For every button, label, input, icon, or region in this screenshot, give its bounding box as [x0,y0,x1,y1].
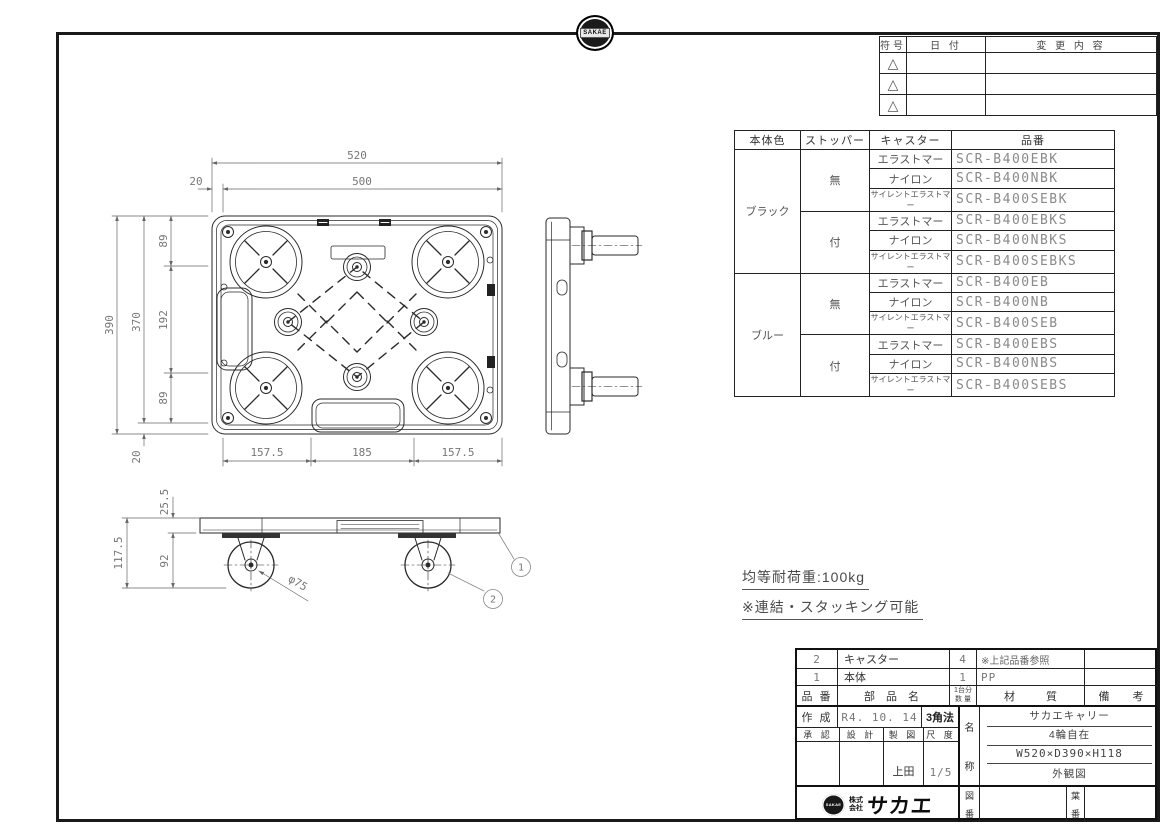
company-prefix-bottom: 会社 [849,805,863,813]
part-no-cell: 2 [797,650,838,669]
sakae-logo-badge-icon: SAKAE [576,15,614,51]
side-view [546,218,642,434]
dim-185: 185 [352,446,372,459]
dim-500: 500 [352,175,372,188]
part-note-cell [1085,669,1157,686]
connector-hubs [275,254,438,391]
col-header-no: 品 番 [797,686,838,707]
name-label-bottom: 称 [965,758,975,773]
design-label: 設 計 [840,728,884,742]
rib-pattern [288,267,424,377]
balloon-callouts: 1 2 [448,534,531,609]
drafter-name: 上田 [884,742,924,785]
dim-wheel-dia: φ75 [286,572,310,593]
side-caster-top [570,227,642,264]
dim-89-bottom: 89 [157,391,170,404]
approve-label: 承 認 [797,728,840,742]
name-label: 名 称 [960,707,980,785]
qty-header-top: 1台分 [954,687,972,695]
front-caster-right [401,538,455,591]
approve-value [797,742,840,785]
col-header-material: 材 質 [977,686,1085,707]
drawing-sheet: SAKAE 符号 日 付 変 更 内 容 △ △ △ 本体色 ストッパー キャス… [0,0,1174,831]
part-no-cell: 1 [797,669,838,686]
dim-157-right: 157.5 [441,446,474,459]
part-name-cell: キャスター [838,650,950,669]
company-name: サカエ [865,790,934,820]
col-header-name: 部 品 名 [838,686,950,707]
col-header-note: 備 考 [1085,686,1157,707]
caster-mount-circles [230,226,484,424]
dim-370: 370 [130,312,143,332]
company-logo: SAKAE 株式 会社 サカエ [797,785,960,822]
part-note-cell [1085,650,1157,669]
scale-value: 1/5 [924,742,960,785]
scale-label: 尺 度 [924,728,960,742]
created-label: 作 成 [797,707,838,728]
draft-label: 製 図 [884,728,924,742]
front-view [200,518,500,591]
dim-89-top: 89 [157,234,170,247]
part-qty-cell: 1 [950,669,977,686]
corner-screws [221,227,493,424]
dim-92: 92 [158,554,171,567]
dim-520: 520 [347,149,367,162]
name-label-top: 名 [965,719,975,734]
sheet-no-value [1085,785,1157,822]
projection-method: 3角法 [922,707,960,728]
product-line: W520×D390×H118 [980,746,1159,765]
product-line: サカエキャリー [980,707,1159,727]
col-header-qty: 1台分数 量 [950,686,977,707]
dim-20-left: 20 [189,175,202,188]
product-line: 外観図 [980,765,1159,785]
part-name-cell: 本体 [838,669,950,686]
design-value [840,742,884,785]
dim-20-bottom: 20 [130,450,143,463]
dim-192: 192 [157,310,170,330]
front-caster-left [224,538,278,591]
created-date: R4. 10. 14 [838,707,922,728]
side-caster-bottom [570,368,642,405]
dim-25-5: 25.5 [158,489,171,516]
dim-390: 390 [103,315,116,335]
company-prefix-top: 株式 [849,797,863,805]
title-block: 2 キャスター 4 ※上記品番参照 1 本体 1 PP 品 番 部 品 名 1台… [795,648,1157,820]
sakae-logo-text: SAKAE [580,28,610,38]
sakae-company-badge-icon: SAKAE [822,794,845,816]
drawing-no-label: 図 番 [960,785,980,822]
dim-117-5: 117.5 [112,536,125,569]
sheet-no-label: 葉 番 [1067,785,1085,822]
product-line: 4輪自在 [980,727,1159,746]
balloon-2: 2 [490,595,496,606]
part-material-cell: ※上記品番参照 [977,650,1085,669]
part-qty-cell: 4 [950,650,977,669]
dim-157-left: 157.5 [250,446,283,459]
balloon-1: 1 [518,563,524,574]
qty-header-bottom: 数 量 [954,696,972,704]
part-material-cell: PP [977,669,1085,686]
drawing-no-value [980,785,1067,822]
top-view [212,216,502,434]
